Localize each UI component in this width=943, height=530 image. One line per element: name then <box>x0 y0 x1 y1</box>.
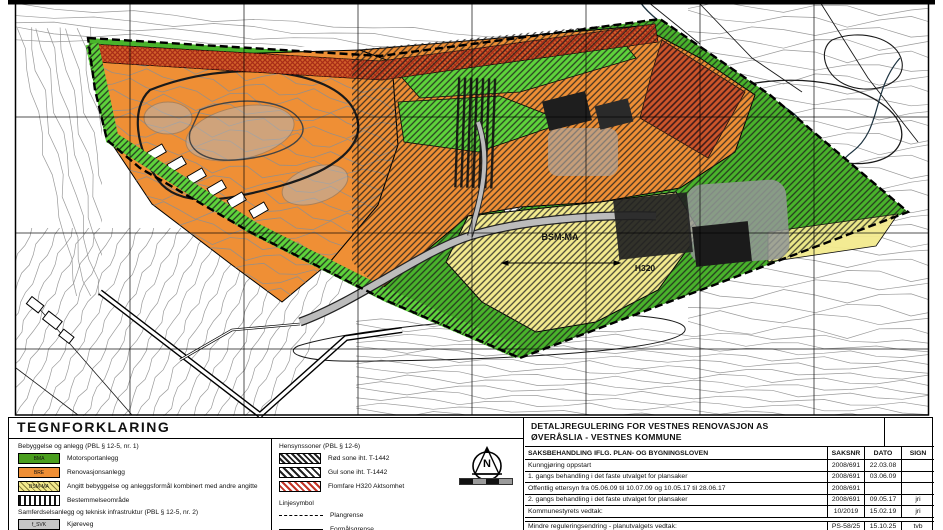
table-cell-saksnr: 10/2019 <box>827 506 864 517</box>
title-empty-cell <box>884 418 934 447</box>
building-outlines-outside <box>26 297 74 344</box>
map-label: H320 <box>635 263 656 273</box>
legend-item: Gul sone iht. T-1442 <box>279 467 459 478</box>
table-row: Offentlig ettersyn fra 05.06.09 til 10.0… <box>525 483 934 495</box>
table-cell-description: SAKSBEHANDLING IFLG. PLAN- OG BYGNINGSLO… <box>525 447 827 459</box>
table-cell-dato <box>864 483 901 494</box>
table-row: Mindre reguleringsendring - planutvalget… <box>525 522 934 530</box>
legend-right-column: Hensynssoner (PBL § 12-6)Rød sone iht. T… <box>279 440 459 530</box>
table-cell-saksnr: 2008/691 <box>827 460 864 471</box>
plan-document: BSM-MAH320 TEGNFORKLARING Bebyggelse og … <box>0 0 943 530</box>
bottom-panel: TEGNFORKLARING Bebyggelse og anlegg (PBL… <box>8 417 933 530</box>
legend-item: f_SVKKjøreveg <box>18 519 268 530</box>
table-cell-sign: jri <box>901 495 934 506</box>
table-cell-saksnr: 2008/691 <box>827 483 864 494</box>
legend-item: Plangrense <box>279 510 459 521</box>
table-cell-sign: jri <box>901 506 934 517</box>
legend-item-label: Renovasjonsanlegg <box>67 469 125 476</box>
legend-item-label: Angitt bebyggelse og anleggsformål kombi… <box>67 483 258 490</box>
legend-item-label: Formålsgrense <box>330 526 374 530</box>
table-cell-description: Kommunestyrets vedtak: <box>525 506 827 517</box>
legend-item-label: Flomfare H320 Aktsomhet <box>328 483 404 490</box>
legend-section-heading: Samferdselsanlegg og teknisk infrastrukt… <box>18 509 268 516</box>
legend-swatch-red-hatch <box>279 481 321 492</box>
legend-item: Flomfare H320 Aktsomhet <box>279 481 459 492</box>
legend-title: TEGNFORKLARING <box>17 419 170 435</box>
legend-item: Rød sone iht. T-1442 <box>279 453 459 464</box>
table-cell-dato: DATO <box>864 447 901 459</box>
table-cell-sign <box>901 472 934 483</box>
map-label: BSM-MA <box>542 232 579 242</box>
zone-bestemmelseomrade <box>454 77 498 188</box>
legend-swatch-black-hatch-dense <box>279 453 321 464</box>
legend-swatch-green: BMA <box>18 453 60 464</box>
legend-swatch-yellow-hatch: BSM-MA <box>18 481 60 492</box>
plan-map: BSM-MAH320 <box>0 0 943 417</box>
table-cell-description: Mindre reguleringsendring - planutvalget… <box>525 522 827 530</box>
plan-title-line1: DETALJREGULERING FOR VESTNES RENOVASJON … <box>531 421 768 431</box>
legend-linesymbol-solid <box>279 526 323 530</box>
legend-item: Bestemmelseområde <box>18 495 268 506</box>
plan-map-drawing: BSM-MAH320 <box>0 0 943 417</box>
table-cell-description: Offentlig ettersyn fra 05.06.09 til 10.0… <box>525 483 827 494</box>
table-row: Kommunestyrets vedtak:10/201915.02.19jri <box>525 506 934 518</box>
legend-item: BMAMotorsportanlegg <box>18 453 268 464</box>
titleblock-divider <box>523 418 524 530</box>
road-outside <box>100 292 402 415</box>
legend-swatch-vertical-stripes <box>18 495 60 506</box>
legend-rule <box>9 438 523 439</box>
legend-section-heading: Hensynssoner (PBL § 12-6) <box>279 443 459 450</box>
legend-section-heading: Linjesymbol <box>279 500 459 507</box>
legend-item-label: Motorsportanlegg <box>67 455 118 462</box>
legend-section-heading: Bebyggelse og anlegg (PBL § 12-5, nr. 1) <box>18 443 268 450</box>
legend-left-column: Bebyggelse og anlegg (PBL § 12-5, nr. 1)… <box>18 440 268 530</box>
title-row: DETALJREGULERING FOR VESTNES RENOVASJON … <box>525 418 934 447</box>
legend: TEGNFORKLARING Bebyggelse og anlegg (PBL… <box>9 418 523 530</box>
table-cell-saksnr: 2008/691 <box>827 472 864 483</box>
legend-item: BRERenovasjonsanlegg <box>18 467 268 478</box>
table-cell-description: 2. gangs behandling i det faste utvalget… <box>525 495 827 506</box>
table-cell-dato: 15.02.19 <box>864 506 901 517</box>
legend-swatch-orange: BRE <box>18 467 60 478</box>
table-cell-sign: SIGN <box>901 447 934 459</box>
case-processing-table: SAKSBEHANDLING IFLG. PLAN- OG BYGNINGSLO… <box>525 447 934 530</box>
plan-title-line2: ØVERÅSLIA - VESTNES KOMMUNE <box>531 432 682 442</box>
hatch-overlay-gul-sone <box>352 20 908 358</box>
legend-column-divider <box>271 438 272 530</box>
legend-swatch-gray: f_SVK <box>18 519 60 530</box>
table-header-row: SAKSBEHANDLING IFLG. PLAN- OG BYGNINGSLO… <box>525 447 934 460</box>
table-cell-dato: 22.03.08 <box>864 460 901 471</box>
table-row: 2. gangs behandling i det faste utvalget… <box>525 495 934 507</box>
table-cell-saksnr: 2008/691 <box>827 495 864 506</box>
table-cell-description: 1. gangs behandling i det faste utvalget… <box>525 472 827 483</box>
legend-swatch-black-hatch <box>279 467 321 478</box>
legend-item: Formålsgrense <box>279 524 459 530</box>
legend-item-label: Kjøreveg <box>67 521 93 528</box>
legend-item-label: Bestemmelseområde <box>67 497 129 504</box>
table-cell-dato: 09.05.17 <box>864 495 901 506</box>
scale-bar <box>459 478 513 485</box>
table-cell-dato: 15.10.25 <box>864 522 901 530</box>
table-cell-sign <box>901 483 934 494</box>
legend-item-label: Rød sone iht. T-1442 <box>328 455 389 462</box>
table-cell-dato: 03.06.09 <box>864 472 901 483</box>
table-cell-sign <box>901 460 934 471</box>
table-cell-description: Kunngjøring oppstart <box>525 460 827 471</box>
table-row: 1. gangs behandling i det faste utvalget… <box>525 472 934 484</box>
legend-linesymbol-dashed <box>279 512 323 520</box>
legend-item-label: Gul sone iht. T-1442 <box>328 469 387 476</box>
table-row: Kunngjøring oppstart2008/69122.03.08 <box>525 460 934 472</box>
title-block: DETALJREGULERING FOR VESTNES RENOVASJON … <box>525 418 934 530</box>
table-cell-sign: tvb <box>901 522 934 530</box>
table-cell-saksnr: SAKSNR <box>827 447 864 459</box>
table-cell-saksnr: PS-58/25 <box>827 522 864 530</box>
legend-item: BSM-MAAngitt bebyggelse og anleggsformål… <box>18 481 268 492</box>
svg-text:N: N <box>483 458 491 470</box>
legend-item-label: Plangrense <box>330 512 363 519</box>
